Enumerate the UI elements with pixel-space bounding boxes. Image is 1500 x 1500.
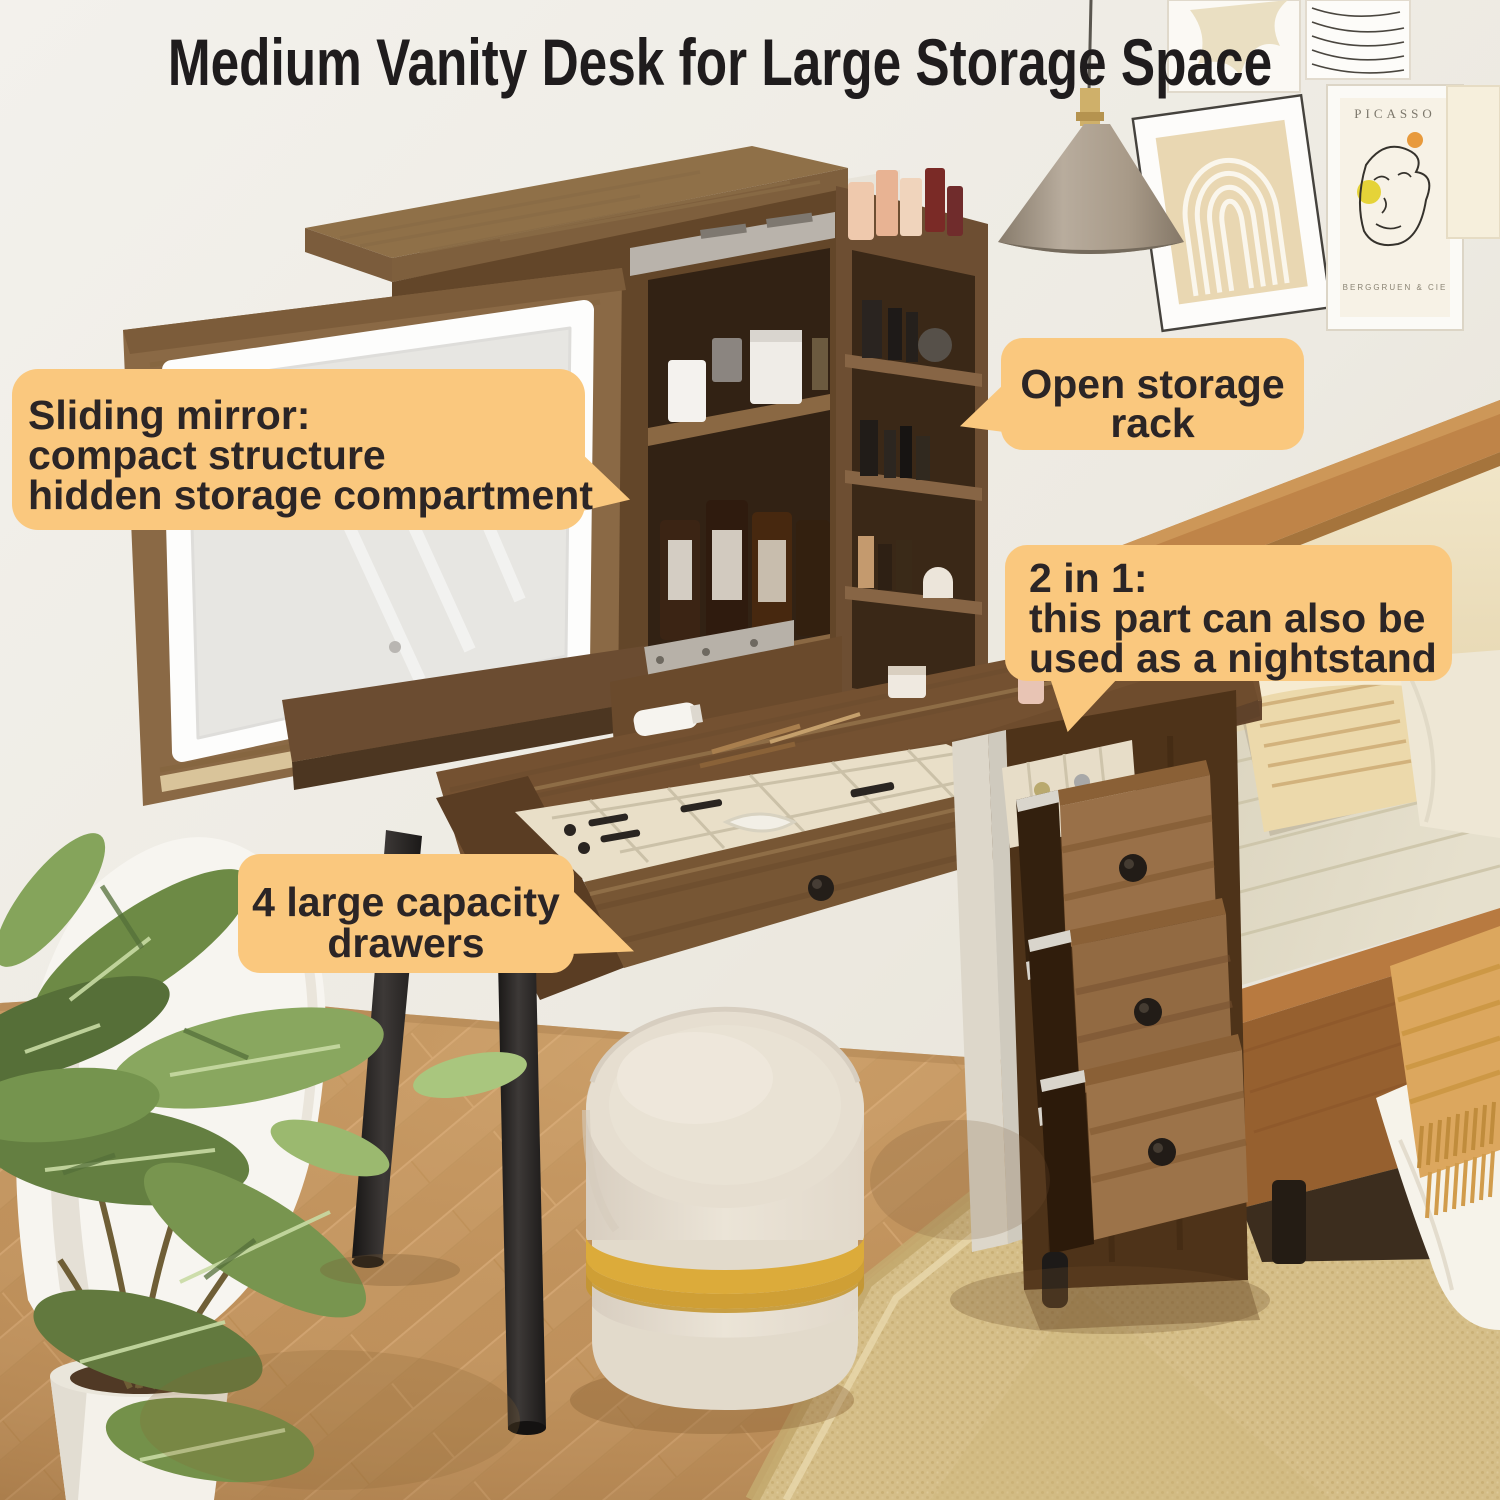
svg-text:BERGGRUEN & CIE: BERGGRUEN & CIE [1343,283,1448,292]
svg-text:PICASSO: PICASSO [1354,106,1435,121]
